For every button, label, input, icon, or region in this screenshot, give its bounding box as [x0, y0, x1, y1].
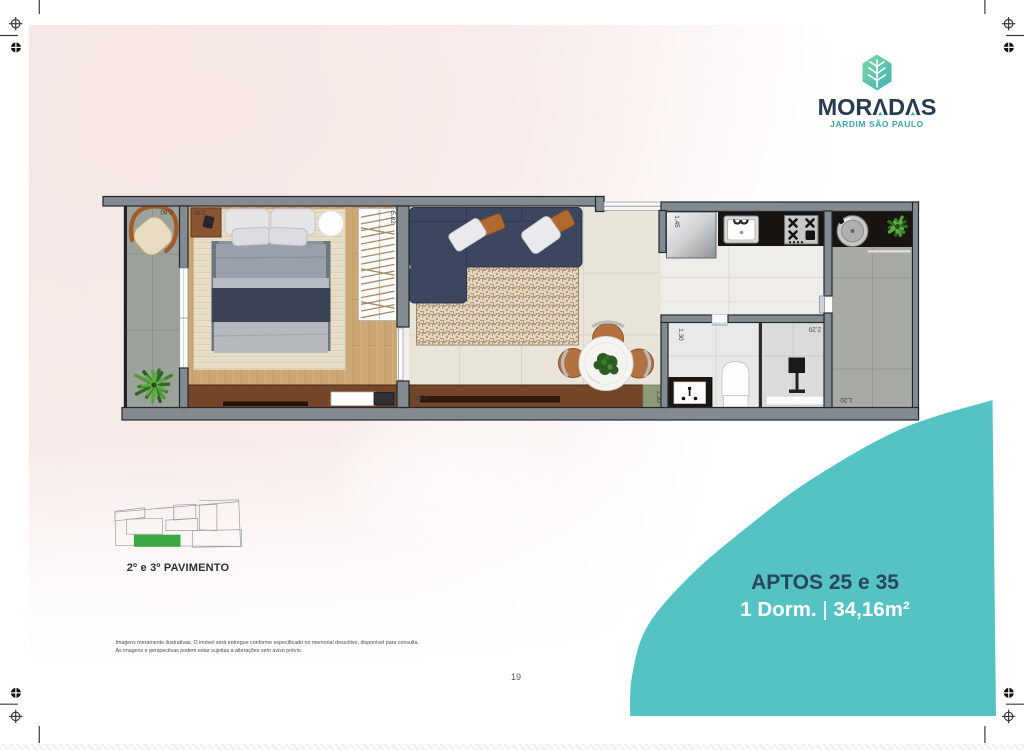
svg-text:1,20: 1,20 [840, 396, 853, 403]
svg-text:1,30: 1,30 [655, 390, 662, 403]
svg-text:2,20: 2,20 [808, 326, 821, 333]
svg-text:5,82: 5,82 [389, 211, 396, 224]
svg-text:1,45: 1,45 [673, 215, 680, 228]
svg-text:2,95: 2,95 [193, 209, 206, 216]
svg-text:1,30: 1,30 [677, 328, 684, 341]
svg-text:3,57: 3,57 [415, 393, 428, 400]
svg-text:0,80: 0,80 [160, 208, 173, 215]
